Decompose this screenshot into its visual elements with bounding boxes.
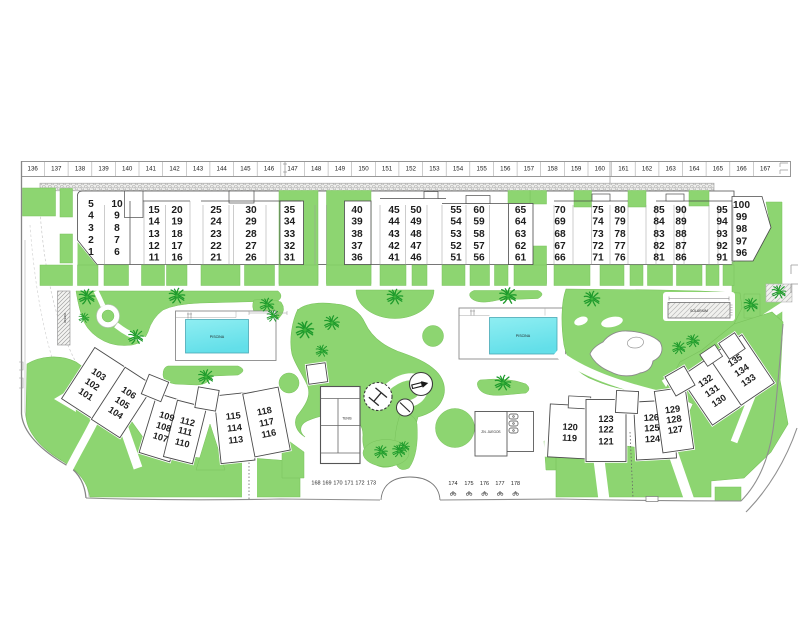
svg-text:100: 100 [733,200,750,211]
svg-text:43: 43 [388,229,400,240]
svg-text:11: 11 [149,253,160,264]
svg-text:34: 34 [284,216,296,227]
svg-text:7: 7 [114,235,120,246]
svg-text:77: 77 [614,241,626,252]
svg-text:83: 83 [653,229,665,240]
svg-text:80: 80 [614,205,626,216]
svg-text:1: 1 [88,247,94,258]
svg-text:69: 69 [554,216,566,227]
svg-text:16: 16 [171,253,183,264]
svg-text:71: 71 [592,253,604,264]
svg-text:143: 143 [193,166,204,173]
svg-text:79: 79 [614,216,626,227]
svg-text:99: 99 [736,212,748,223]
svg-text:40: 40 [351,205,363,216]
svg-text:56: 56 [473,253,485,264]
svg-text:46: 46 [410,253,422,264]
svg-text:113: 113 [228,434,244,445]
svg-text:162: 162 [642,166,653,173]
svg-text:18: 18 [171,229,183,240]
svg-text:172: 172 [355,481,364,487]
svg-text:90: 90 [675,205,687,216]
svg-text:67: 67 [554,241,566,252]
svg-text:78: 78 [614,229,626,240]
svg-text:73: 73 [592,229,604,240]
svg-text:139: 139 [98,166,109,173]
svg-text:178: 178 [511,481,520,487]
svg-text:21: 21 [210,253,222,264]
svg-text:4: 4 [88,211,94,222]
svg-text:66: 66 [554,253,566,264]
svg-text:35: 35 [284,205,296,216]
svg-text:61: 61 [515,253,527,264]
svg-text:87: 87 [675,241,687,252]
svg-text:64: 64 [515,216,527,227]
svg-text:88: 88 [675,229,687,240]
svg-text:85: 85 [653,205,665,216]
svg-text:70: 70 [554,205,566,216]
svg-text:95: 95 [716,205,728,216]
svg-text:142: 142 [169,166,180,173]
svg-text:89: 89 [675,216,687,227]
svg-text:31: 31 [284,253,296,264]
svg-text:91: 91 [716,253,728,264]
svg-text:155: 155 [477,166,488,173]
svg-text:72: 72 [592,241,604,252]
svg-text:98: 98 [736,224,748,235]
svg-text:33: 33 [284,229,296,240]
svg-text:12: 12 [148,241,160,252]
svg-text:114: 114 [227,422,244,434]
svg-text:53: 53 [450,229,462,240]
svg-text:10: 10 [111,199,123,210]
svg-text:127: 127 [667,424,684,436]
svg-text:37: 37 [351,241,363,252]
svg-text:13: 13 [148,229,160,240]
svg-text:119: 119 [562,433,577,444]
svg-text:140: 140 [122,166,133,173]
svg-text:57: 57 [473,241,485,252]
svg-text:123: 123 [598,414,613,424]
svg-text:32: 32 [284,241,296,252]
svg-text:150: 150 [358,166,369,173]
svg-text:92: 92 [716,241,728,252]
svg-text:PISCINA: PISCINA [210,335,225,339]
svg-text:45: 45 [388,205,400,216]
svg-text:163: 163 [666,166,677,173]
svg-text:6: 6 [114,247,120,258]
svg-text:175: 175 [464,481,473,487]
svg-text:168: 168 [311,481,320,487]
svg-text:173: 173 [367,481,376,487]
svg-text:120: 120 [562,422,578,433]
svg-text:3: 3 [88,223,94,234]
svg-text:48: 48 [410,229,422,240]
svg-text:94: 94 [716,216,728,227]
svg-text:144: 144 [217,166,228,173]
svg-text:19: 19 [171,216,183,227]
svg-text:146: 146 [264,166,275,173]
svg-text:174: 174 [448,481,457,487]
svg-text:5: 5 [88,199,94,210]
svg-text:125: 125 [644,423,660,434]
svg-text:165: 165 [713,166,724,173]
svg-text:22: 22 [210,241,222,252]
svg-text:38: 38 [351,229,363,240]
svg-text:82: 82 [653,241,665,252]
svg-text:ZN. JUEGOS: ZN. JUEGOS [481,430,500,434]
svg-text:160: 160 [595,166,606,173]
svg-text:75: 75 [592,205,604,216]
svg-text:121: 121 [598,436,613,446]
svg-text:TENIS: TENIS [342,417,351,421]
svg-text:93: 93 [716,229,728,240]
svg-text:58: 58 [473,229,485,240]
svg-text:47: 47 [410,241,422,252]
svg-text:28: 28 [245,229,257,240]
svg-text:39: 39 [351,216,363,227]
svg-text:158: 158 [547,166,558,173]
svg-text:27: 27 [245,241,257,252]
svg-text:26: 26 [245,253,257,264]
svg-text:9: 9 [114,211,120,222]
svg-text:ACERA: ACERA [63,313,67,323]
svg-text:84: 84 [653,216,665,227]
svg-text:44: 44 [388,216,400,227]
svg-text:161: 161 [618,166,629,173]
svg-text:153: 153 [429,166,440,173]
svg-text:147: 147 [287,166,298,173]
svg-text:96: 96 [736,248,748,259]
svg-text:49: 49 [410,216,422,227]
svg-text:14: 14 [148,216,160,227]
svg-text:55: 55 [450,205,462,216]
svg-text:136: 136 [28,166,39,173]
svg-text:156: 156 [500,166,511,173]
svg-text:51: 51 [450,253,462,264]
svg-text:170: 170 [333,481,342,487]
svg-text:50: 50 [410,205,422,216]
svg-text:52: 52 [450,241,462,252]
svg-text:63: 63 [515,229,527,240]
svg-text:23: 23 [210,229,222,240]
svg-text:151: 151 [382,166,393,173]
svg-text:157: 157 [524,166,535,173]
svg-text:15: 15 [148,205,160,216]
svg-text:62: 62 [515,241,527,252]
svg-text:86: 86 [675,253,687,264]
svg-text:141: 141 [146,166,157,173]
svg-text:124: 124 [645,434,662,445]
svg-text:154: 154 [453,166,464,173]
svg-text:SOLARIUM: SOLARIUM [690,309,708,313]
svg-text:177: 177 [495,481,504,487]
svg-text:81: 81 [653,253,665,264]
svg-text:122: 122 [598,424,613,434]
svg-text:8: 8 [114,223,120,234]
svg-text:149: 149 [335,166,346,173]
svg-text:68: 68 [554,229,566,240]
svg-text:76: 76 [614,253,626,264]
svg-text:159: 159 [571,166,582,173]
svg-text:20: 20 [171,205,183,216]
svg-text:176: 176 [480,481,489,487]
svg-text:167: 167 [760,166,771,173]
svg-text:164: 164 [689,166,700,173]
svg-text:24: 24 [210,216,222,227]
svg-text:30: 30 [245,205,257,216]
svg-text:2: 2 [88,235,94,246]
svg-text:42: 42 [388,241,400,252]
svg-text:54: 54 [450,216,462,227]
svg-text:171: 171 [344,481,353,487]
svg-text:126: 126 [643,412,659,423]
svg-text:152: 152 [406,166,417,173]
svg-text:17: 17 [171,241,183,252]
svg-text:97: 97 [736,236,748,247]
svg-text:166: 166 [736,166,747,173]
svg-text:41: 41 [388,253,400,264]
svg-text:25: 25 [210,205,222,216]
svg-text:115: 115 [225,410,241,421]
svg-text:169: 169 [322,481,331,487]
svg-text:138: 138 [75,166,86,173]
svg-text:65: 65 [515,205,527,216]
svg-text:148: 148 [311,166,322,173]
svg-text:137: 137 [51,166,62,173]
svg-text:29: 29 [245,216,257,227]
svg-text:60: 60 [473,205,485,216]
svg-text:59: 59 [473,216,485,227]
svg-text:PISCINA: PISCINA [516,334,531,338]
svg-text:36: 36 [351,253,363,264]
svg-text:74: 74 [592,216,604,227]
svg-text:145: 145 [240,166,251,173]
